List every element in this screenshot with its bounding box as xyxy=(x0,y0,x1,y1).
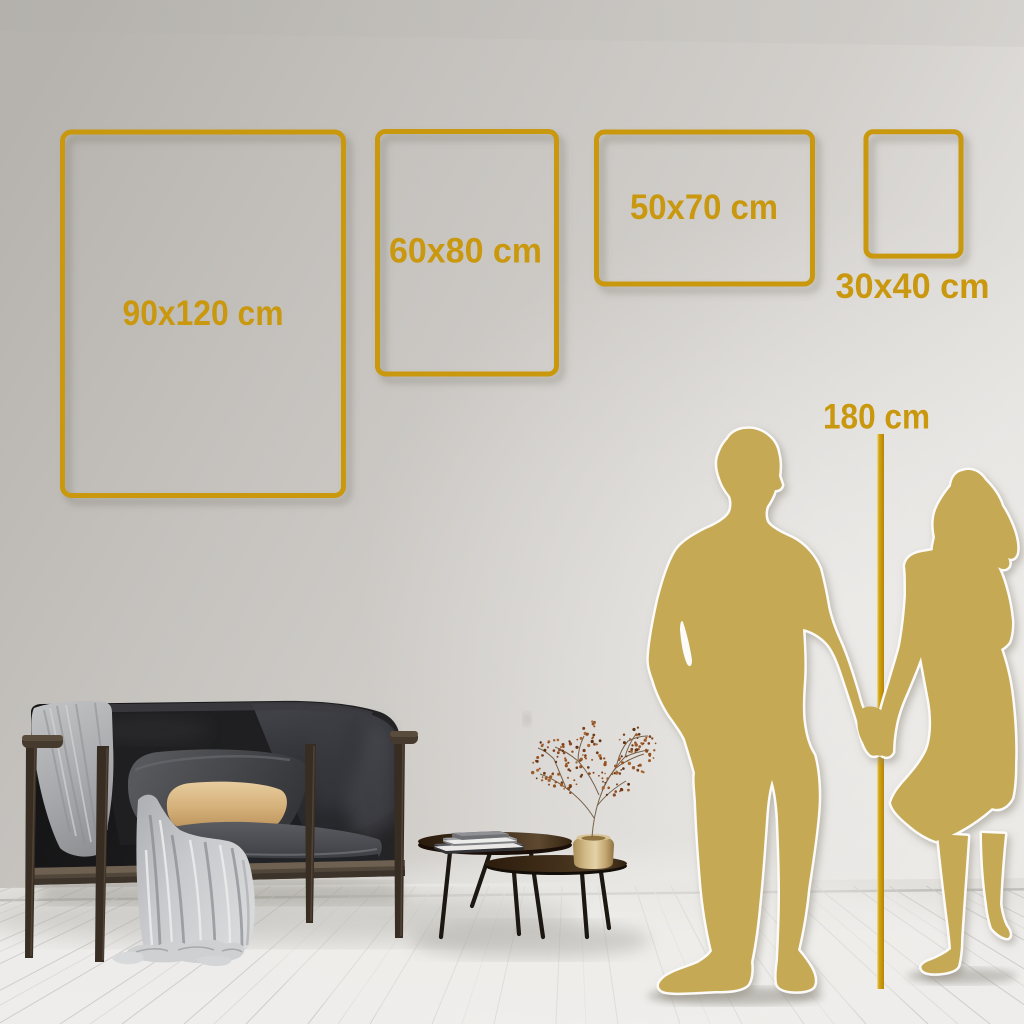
svg-text:30x40 cm: 30x40 cm xyxy=(836,267,990,306)
svg-text:90x120 cm: 90x120 cm xyxy=(123,294,284,333)
svg-text:180 cm: 180 cm xyxy=(823,398,930,437)
svg-text:60x80 cm: 60x80 cm xyxy=(389,232,542,271)
svg-text:50x70 cm: 50x70 cm xyxy=(630,188,778,227)
